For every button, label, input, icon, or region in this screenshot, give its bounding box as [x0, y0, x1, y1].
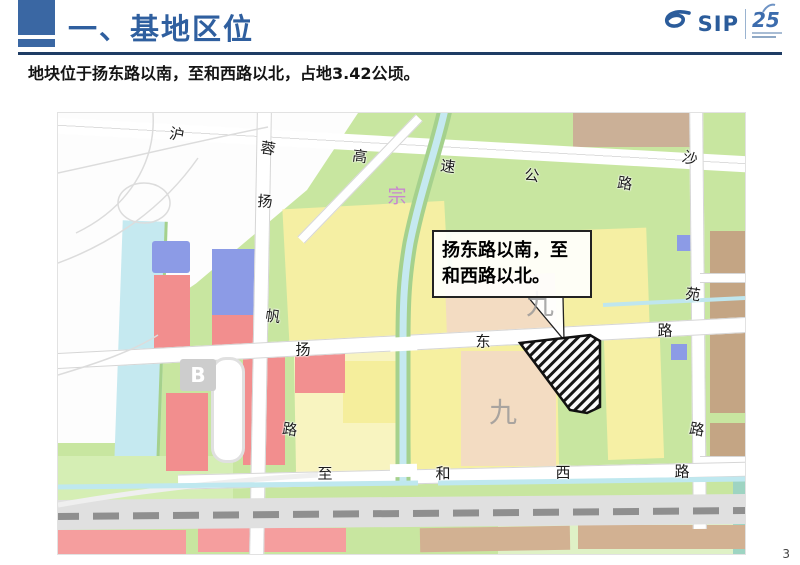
yangfan-road-label-char: 路: [281, 418, 299, 441]
header-underline: [18, 52, 782, 55]
sip-logo: SIP 25: [662, 8, 782, 40]
logo-divider: [745, 9, 746, 39]
minor-road-bottom-left: [58, 475, 318, 505]
page-number: 3: [782, 547, 790, 561]
canal-banks: [403, 113, 445, 485]
expressway-label-char: 速: [439, 155, 457, 178]
expressway-label-char: 路: [616, 172, 634, 195]
expressway-label-char: 公: [523, 164, 541, 187]
zong-area-label: 宗: [387, 182, 406, 209]
interchange-curves: [58, 113, 268, 375]
title-accent-square: [18, 0, 55, 35]
bridge-zhihe: [390, 464, 417, 477]
yangfan-road-label-char: 帆: [264, 305, 282, 328]
yangdong-road-label-char: 扬: [295, 339, 310, 360]
yangdong-road-label-char: 东: [475, 331, 490, 352]
sip-swoosh-icon: [662, 8, 692, 40]
sip-logo-text: SIP: [698, 12, 739, 36]
logo-tagline-bar: [752, 32, 782, 34]
yangfan-road-label-char: 扬: [257, 190, 273, 212]
expressway-label-char: 高: [351, 145, 369, 168]
logo-tagline-bar2: [752, 36, 776, 38]
page-title: 一、基地区位: [68, 6, 254, 48]
zhihe-road-label-char: 西: [555, 462, 570, 483]
map-overlay-graphics: [58, 113, 745, 554]
title-accent-bar: [18, 39, 55, 47]
site-boundary-hatched: [520, 335, 600, 413]
b-building-block: B: [180, 359, 216, 391]
zhihe-road-label-char: 和: [435, 463, 450, 484]
b-building-label: B: [190, 363, 205, 387]
zhihe-road-label-char: 路: [674, 461, 689, 482]
yangdong-road-label-char: 路: [657, 320, 672, 341]
site-callout-box: 扬东路以南，至 和西路以北。: [432, 230, 592, 298]
stream-right: [603, 298, 745, 305]
anniversary-logo: 25: [752, 10, 782, 38]
yuan-road-label-char: 苑: [684, 283, 702, 306]
zhihe-road-label-char: 至: [317, 463, 332, 484]
callout-line-2: 和西路以北。: [442, 264, 582, 290]
slide-subtitle: 地块位于扬东路以南，至和西路以北，占地3.42公顷。: [28, 60, 419, 84]
callout-line-1: 扬东路以南，至: [442, 238, 582, 264]
location-map: 沪 蓉 高 速 公 路 扬 帆 路 扬 东 路 至 和 西 路 苑 路 沙 宗 …: [57, 112, 746, 555]
jiu-area-label-2: 九: [489, 391, 517, 431]
bridge-yangdong: [390, 336, 418, 351]
